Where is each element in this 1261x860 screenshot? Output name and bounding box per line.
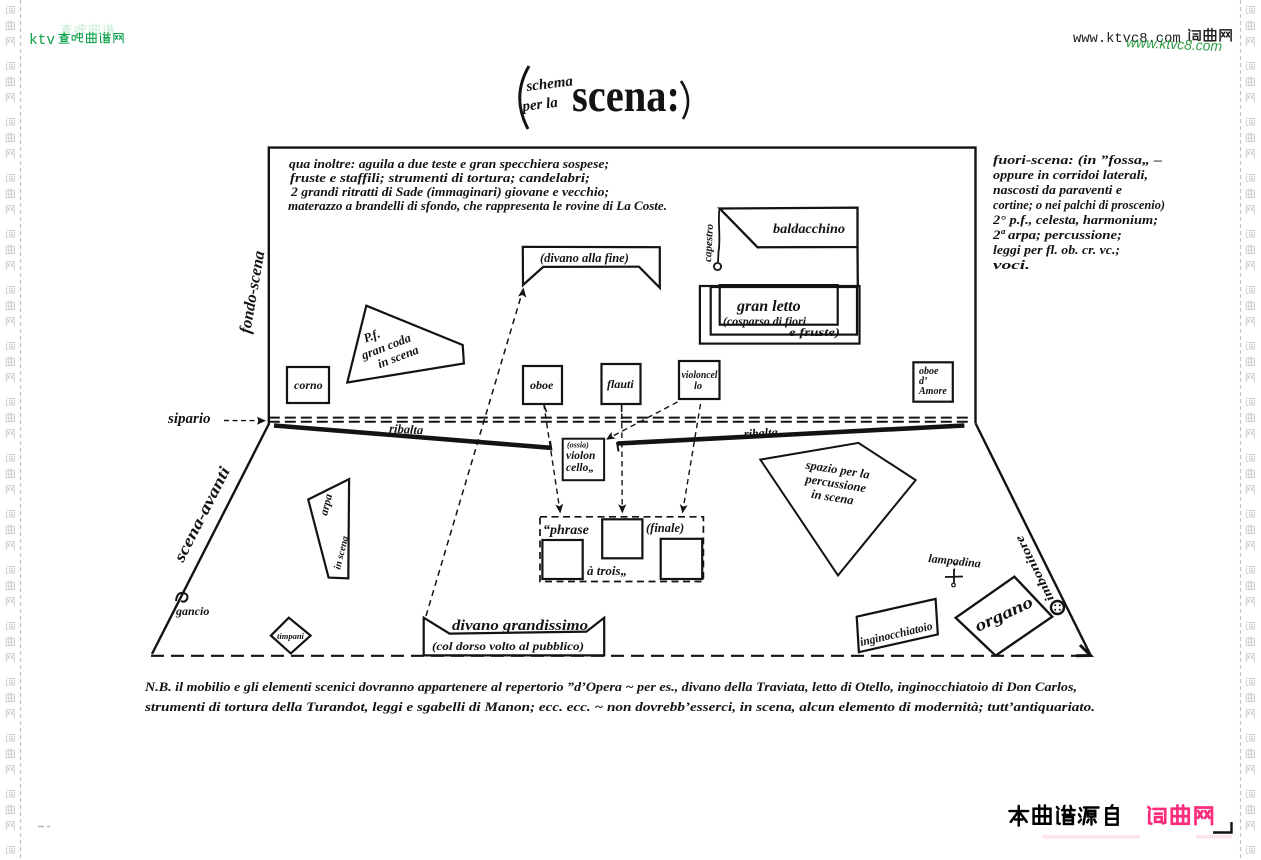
svg-text:baldacchino: baldacchino <box>773 221 845 236</box>
svg-text:N.B. il mobilio e gli elementi: N.B. il mobilio e gli elementi scenici d… <box>144 679 1077 694</box>
svg-text:ribalta: ribalta <box>743 425 778 441</box>
svg-text:(col dorso volto al pubblico): (col dorso volto al pubblico) <box>432 641 584 653</box>
svg-text:leggi per fl. ob. cr. vc.;: leggi per fl. ob. cr. vc.; <box>993 242 1120 257</box>
svg-text:à trois„: à trois„ <box>587 563 627 578</box>
svg-text:e fruste): e fruste) <box>789 327 840 339</box>
svg-text:(ossia): (ossia) <box>567 441 589 450</box>
svg-text:nascosti da paraventi e: nascosti da paraventi e <box>993 182 1122 197</box>
svg-text:ribalta: ribalta <box>389 422 424 438</box>
svg-text:cortine; o nei palchi di prosc: cortine; o nei palchi di proscenio) <box>993 197 1165 212</box>
svg-text:divano grandissimo: divano grandissimo <box>452 618 588 634</box>
svg-text:oppure in corridoi laterali,: oppure in corridoi laterali, <box>993 167 1148 182</box>
svg-text:violoncel: violoncel <box>682 370 718 381</box>
svg-text:2ª arpa; percussione;: 2ª arpa; percussione; <box>992 227 1122 242</box>
svg-text:strumenti di tortura della Tur: strumenti di tortura della Turandot, leg… <box>144 699 1095 714</box>
svg-text:voci.: voci. <box>993 257 1030 272</box>
svg-text:flauti: flauti <box>607 377 634 391</box>
svg-text:scena:: scena: <box>572 70 680 122</box>
svg-text:(finale): (finale) <box>646 521 684 535</box>
svg-text:lo: lo <box>694 381 702 392</box>
svg-text:fuori-scena: (in ”fossa„ –: fuori-scena: (in ”fossa„ – <box>993 152 1163 167</box>
svg-text:2 grandi ritratti di Sade (imm: 2 grandi ritratti di Sade (immaginari) g… <box>290 184 609 199</box>
svg-text:gran letto: gran letto <box>736 298 801 315</box>
svg-text:gancio: gancio <box>175 604 209 618</box>
svg-text:(divano alla fine): (divano alla fine) <box>540 251 629 265</box>
svg-text:sipario: sipario <box>167 411 211 427</box>
svg-text:materazzo a brandelli di sfond: materazzo a brandelli di sfondo, che rap… <box>288 198 667 213</box>
svg-text:cello„: cello„ <box>566 462 594 474</box>
svg-text:ktv: ktv <box>29 33 55 49</box>
svg-text:capestro: capestro <box>702 223 716 262</box>
svg-text:Amore: Amore <box>918 386 947 397</box>
svg-text:“phrase: “phrase <box>543 523 589 538</box>
svg-text:oboe: oboe <box>530 378 554 392</box>
svg-text:fruste e staffili; strumenti d: fruste e staffili; strumenti di tortura;… <box>290 170 590 185</box>
svg-text:2° p.f., celesta, harmonium;: 2° p.f., celesta, harmonium; <box>992 212 1158 227</box>
svg-text:timpani: timpani <box>277 631 305 641</box>
svg-text:violon: violon <box>566 450 595 462</box>
svg-text:corno: corno <box>294 378 323 392</box>
svg-text:qua inoltre: aguila a due test: qua inoltre: aguila a due teste e gran s… <box>289 156 609 171</box>
